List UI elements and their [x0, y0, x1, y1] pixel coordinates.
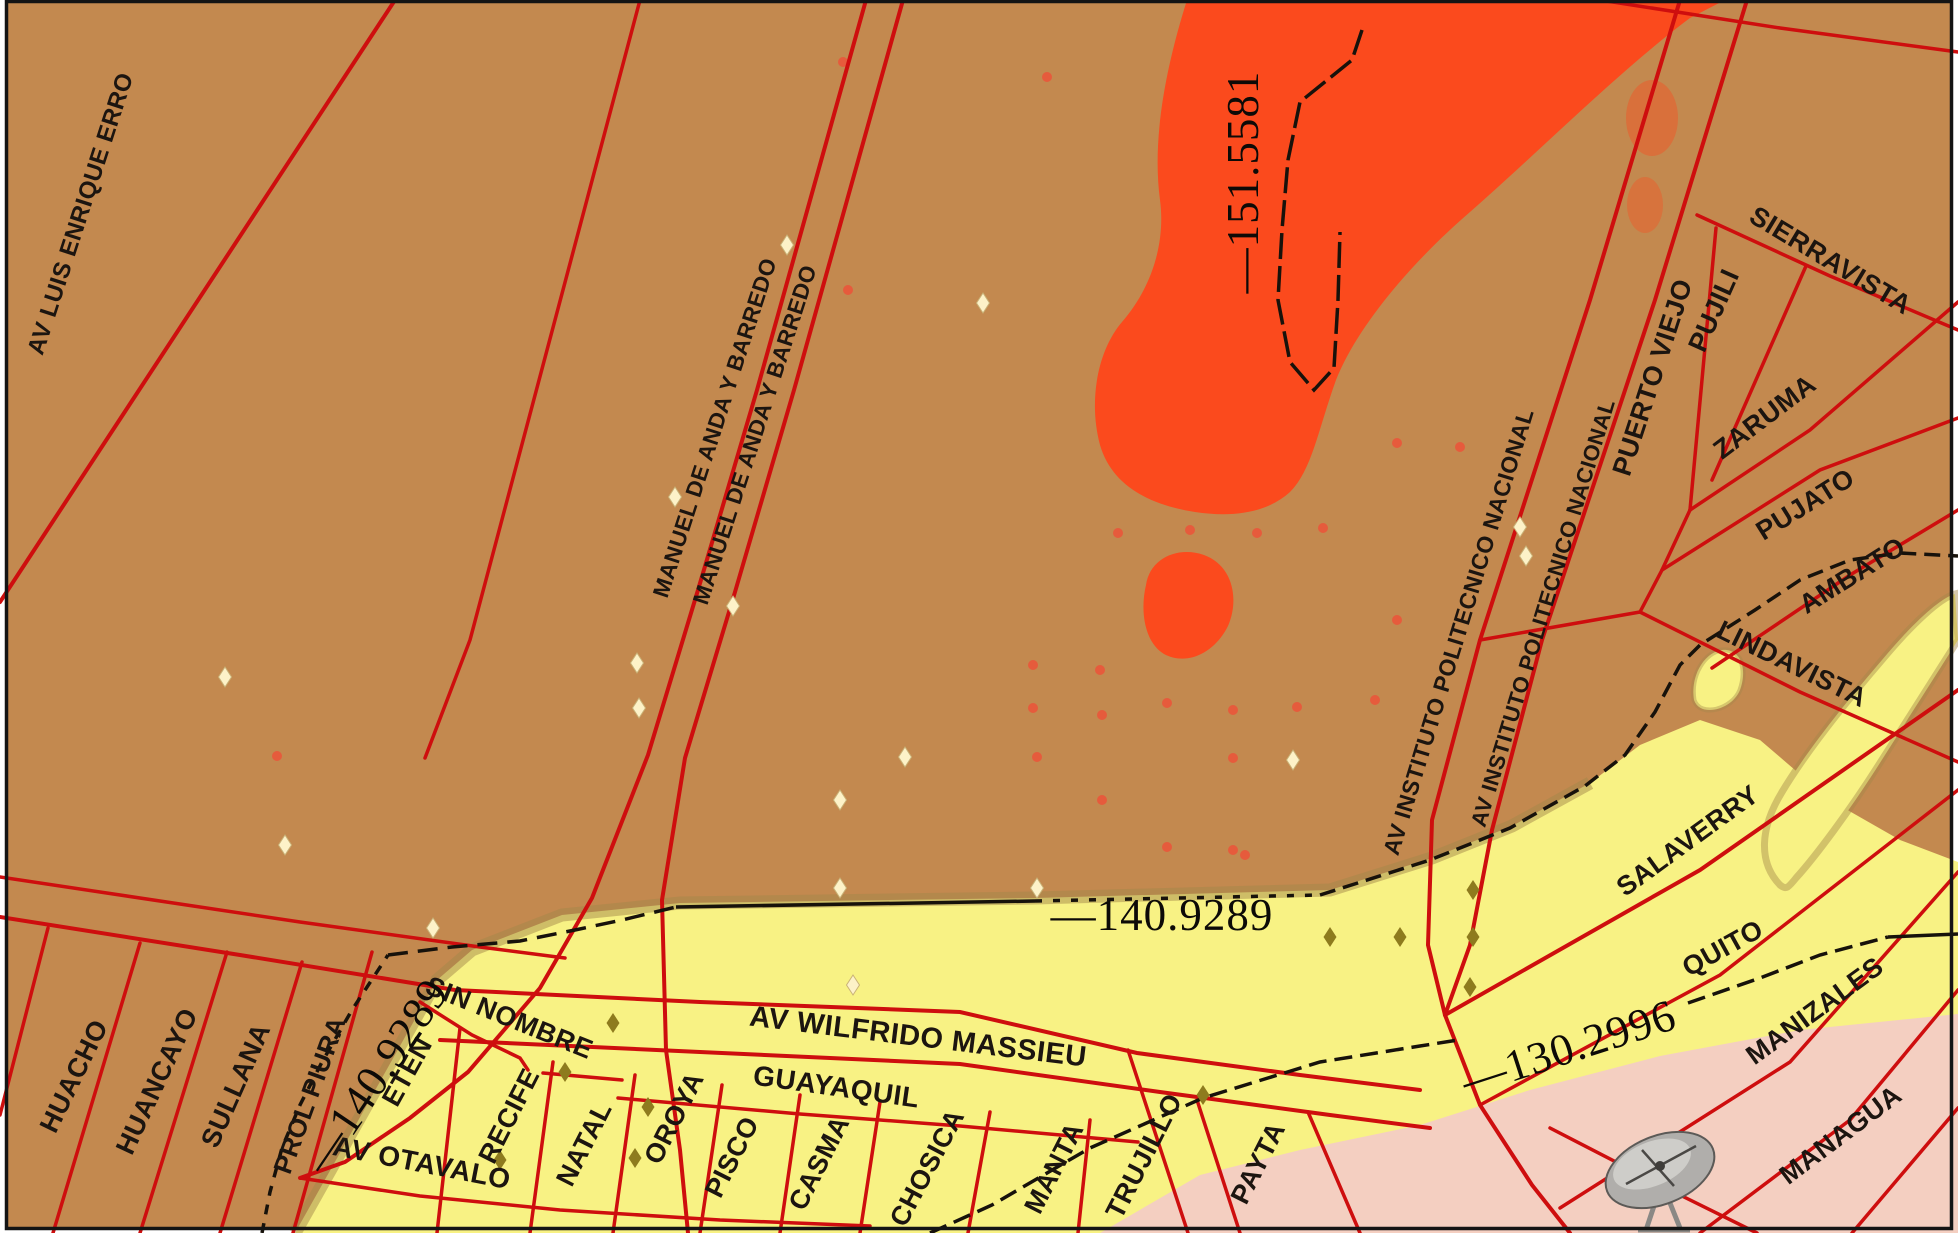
red-dot	[1032, 752, 1042, 762]
red-dot	[1240, 850, 1250, 860]
red-dot	[1095, 665, 1105, 675]
red-dot	[843, 285, 853, 295]
red-dot	[1455, 442, 1465, 452]
contour-label-151: —151.5581	[1218, 71, 1268, 295]
contour-label-140-horizontal: —140.9289	[1050, 890, 1274, 940]
red-dot	[1228, 845, 1238, 855]
red-dot	[1028, 660, 1038, 670]
red-dot	[1042, 72, 1052, 82]
dish-hub	[1655, 1161, 1665, 1171]
red-dot	[1113, 528, 1123, 538]
red-dot	[1185, 525, 1195, 535]
red-dot	[1228, 705, 1238, 715]
red-dot	[1028, 703, 1038, 713]
red-dot	[1318, 523, 1328, 533]
red-anomaly-fade	[1627, 177, 1663, 233]
red-dot	[1252, 528, 1262, 538]
red-dot	[1162, 698, 1172, 708]
map-screenshot: AV LUIS ENRIQUE ERRO MANUEL DE ANDA Y BA…	[0, 0, 1958, 1233]
red-dot	[1097, 795, 1107, 805]
red-dot	[1392, 438, 1402, 448]
red-dot	[1162, 842, 1172, 852]
red-dot	[1228, 753, 1238, 763]
red-dot	[1392, 615, 1402, 625]
red-dot	[1097, 710, 1107, 720]
red-dot	[1370, 695, 1380, 705]
red-dot	[1292, 702, 1302, 712]
red-dot	[272, 751, 282, 761]
